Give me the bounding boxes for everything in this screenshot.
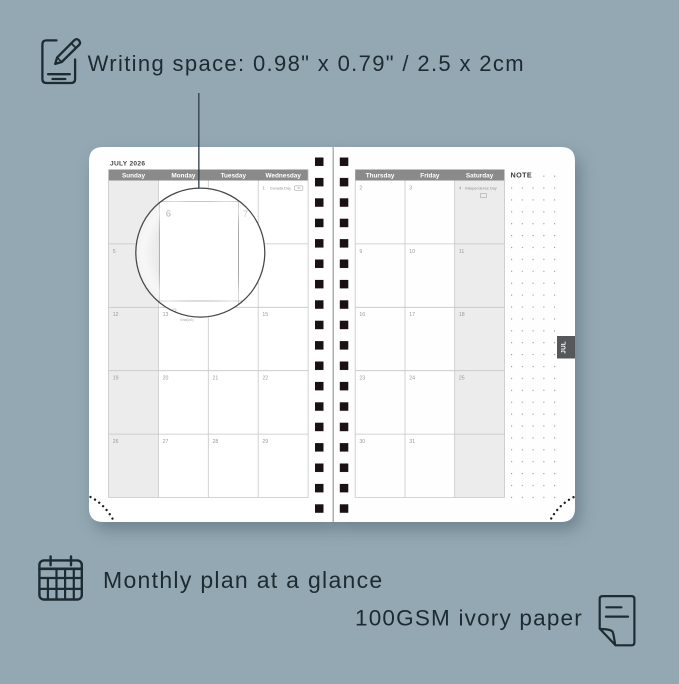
svg-text:100GSM ivory paper: 100GSM ivory paper bbox=[355, 606, 583, 631]
svg-text:4: 4 bbox=[459, 185, 462, 190]
svg-text:22: 22 bbox=[262, 376, 268, 382]
svg-text:27: 27 bbox=[163, 439, 169, 445]
svg-text:5: 5 bbox=[113, 249, 116, 255]
svg-text:JULY 2026: JULY 2026 bbox=[110, 160, 145, 167]
svg-text:28: 28 bbox=[213, 439, 219, 445]
svg-text:9: 9 bbox=[359, 249, 362, 255]
svg-text:17: 17 bbox=[409, 312, 415, 318]
svg-text:31: 31 bbox=[409, 439, 415, 445]
svg-text:Tuesday: Tuesday bbox=[221, 173, 247, 180]
svg-text:JUL: JUL bbox=[561, 341, 568, 354]
svg-text:2: 2 bbox=[359, 185, 362, 191]
svg-text:Writing space: 0.98" x 0.79" /: Writing space: 0.98" x 0.79" / 2.5 x 2cm bbox=[88, 51, 525, 76]
svg-text:10: 10 bbox=[409, 249, 415, 255]
svg-text:Sunday: Sunday bbox=[122, 173, 146, 180]
svg-text:25: 25 bbox=[459, 376, 465, 382]
svg-text:21: 21 bbox=[213, 376, 219, 382]
svg-text:NOTE: NOTE bbox=[511, 171, 533, 180]
svg-text:12: 12 bbox=[113, 312, 119, 318]
svg-text:24: 24 bbox=[409, 376, 415, 382]
svg-text:30: 30 bbox=[359, 439, 365, 445]
svg-text:29: 29 bbox=[262, 439, 268, 445]
svg-text:19: 19 bbox=[113, 376, 119, 382]
svg-text:23: 23 bbox=[359, 376, 365, 382]
svg-text:Canada Day: Canada Day bbox=[270, 186, 291, 190]
svg-text:Monday: Monday bbox=[171, 173, 196, 180]
svg-text:Saturday: Saturday bbox=[466, 173, 494, 180]
svg-text:30: 30 bbox=[297, 186, 301, 190]
svg-text:Friday: Friday bbox=[420, 173, 440, 180]
svg-text:1: 1 bbox=[262, 185, 265, 190]
svg-text:3: 3 bbox=[409, 185, 412, 191]
svg-text:13: 13 bbox=[163, 312, 169, 318]
svg-text:18: 18 bbox=[459, 312, 465, 318]
svg-text:Thursday: Thursday bbox=[366, 173, 395, 180]
svg-text:Wednesday: Wednesday bbox=[265, 173, 301, 180]
svg-text:Monthly plan at a glance: Monthly plan at a glance bbox=[103, 567, 384, 593]
svg-text:20: 20 bbox=[163, 376, 169, 382]
svg-text:26: 26 bbox=[113, 439, 119, 445]
svg-text:Independence Day: Independence Day bbox=[465, 186, 497, 190]
svg-text:11: 11 bbox=[459, 249, 464, 255]
svg-text:16: 16 bbox=[359, 312, 365, 318]
svg-text:End(US): End(US) bbox=[181, 318, 194, 322]
svg-text:15: 15 bbox=[262, 312, 268, 318]
